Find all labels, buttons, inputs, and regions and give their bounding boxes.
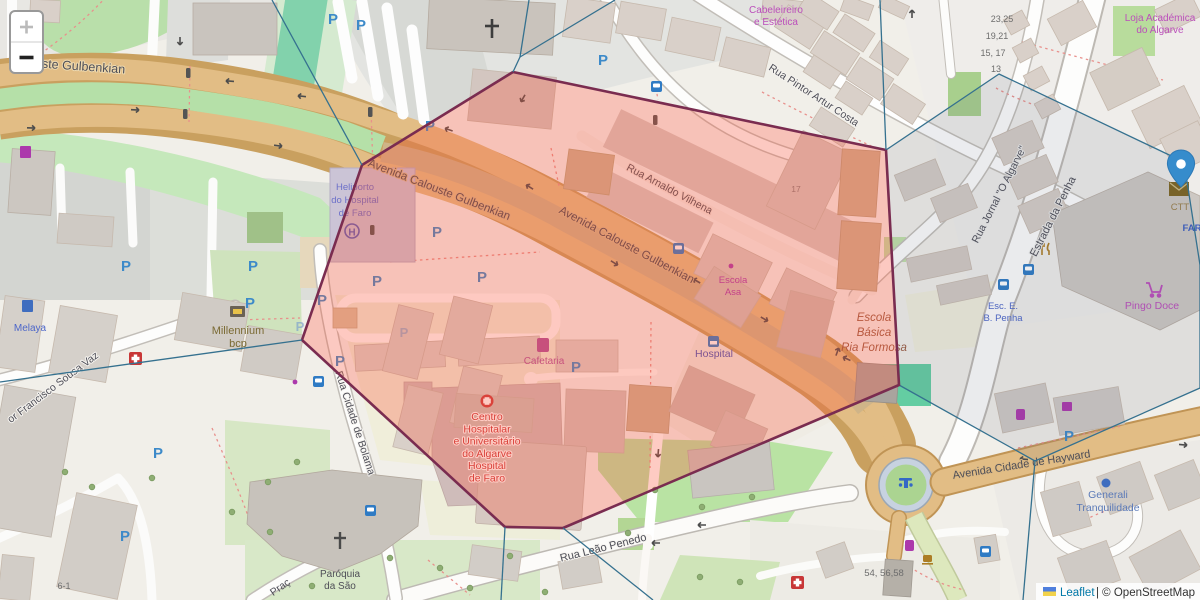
svg-text:Loja Académica: Loja Académica	[1125, 13, 1196, 24]
svg-text:6-1: 6-1	[57, 581, 70, 591]
svg-text:Leaflet: Leaflet	[1060, 587, 1095, 599]
svg-text:P: P	[356, 17, 366, 34]
svg-text:15, 17: 15, 17	[980, 48, 1005, 58]
svg-text:P: P	[598, 52, 608, 69]
svg-text:P: P	[296, 319, 305, 334]
svg-text:Paróquia: Paróquia	[320, 569, 360, 580]
svg-text:Tranquilidade: Tranquilidade	[1076, 502, 1139, 514]
svg-text:do Algarve: do Algarve	[1136, 25, 1184, 36]
svg-text:P: P	[120, 528, 130, 545]
svg-text:P: P	[245, 295, 255, 312]
svg-text:P: P	[248, 258, 258, 275]
svg-text:P: P	[121, 258, 131, 275]
svg-text:Millennium: Millennium	[212, 325, 265, 337]
svg-text:Cabeleireiro: Cabeleireiro	[749, 5, 803, 16]
svg-text:| © OpenStreetMap: | © OpenStreetMap	[1096, 587, 1195, 599]
svg-text:e Estética: e Estética	[754, 17, 798, 28]
svg-text:P: P	[153, 445, 163, 462]
svg-text:Melaya: Melaya	[14, 323, 47, 334]
svg-text:P: P	[328, 11, 338, 28]
svg-text:23,25: 23,25	[991, 14, 1014, 24]
svg-text:Generali: Generali	[1088, 489, 1128, 501]
svg-text:da São: da São	[324, 581, 356, 592]
svg-text:13: 13	[991, 64, 1001, 74]
svg-text:54, 56,58: 54, 56,58	[864, 568, 904, 579]
svg-text:19,21: 19,21	[986, 31, 1009, 41]
